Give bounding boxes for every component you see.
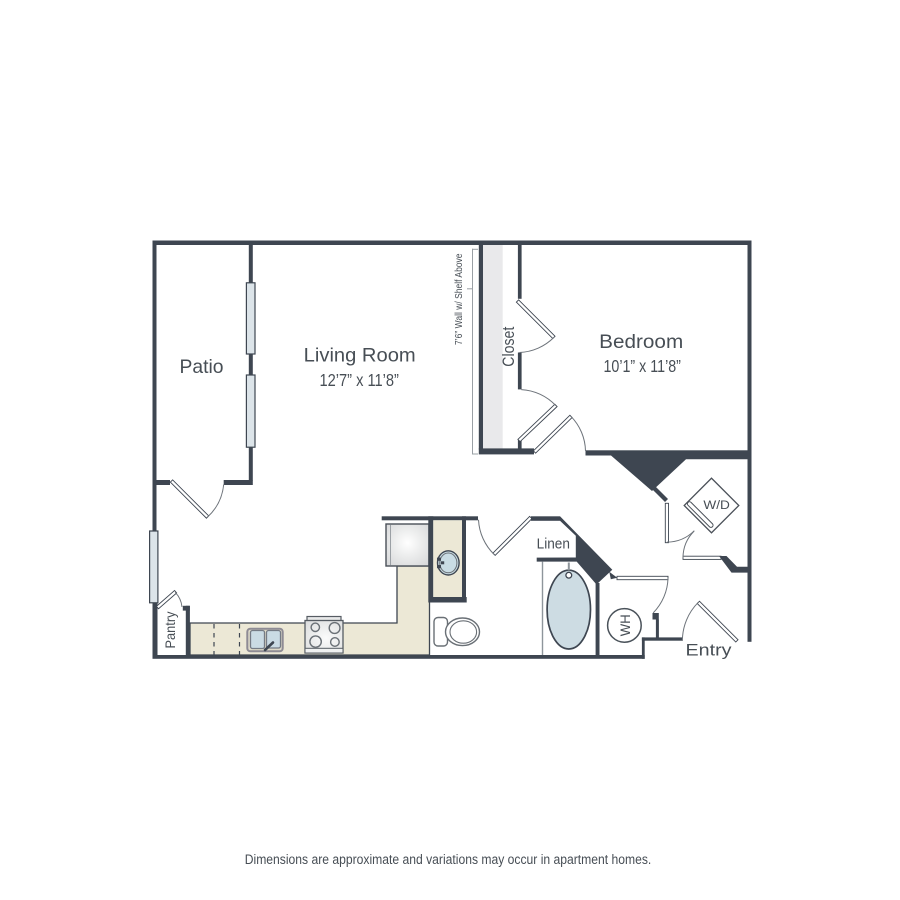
svg-text:12’7” x 11’8”: 12’7” x 11’8”	[319, 370, 399, 390]
svg-text:WH: WH	[618, 614, 633, 636]
svg-text:Living Room: Living Room	[304, 345, 416, 367]
svg-text:Closet: Closet	[500, 326, 518, 366]
svg-text:Patio: Patio	[180, 356, 224, 378]
svg-text:Bedroom: Bedroom	[599, 331, 683, 353]
svg-text:Linen: Linen	[537, 535, 570, 552]
svg-text:Pantry: Pantry	[162, 612, 178, 649]
svg-text:10’1” x 11’8”: 10’1” x 11’8”	[603, 356, 681, 376]
svg-text:7’6” Wall w/ Shelf Above: 7’6” Wall w/ Shelf Above	[454, 253, 465, 345]
svg-text:Dimensions are approximate and: Dimensions are approximate and variation…	[245, 852, 652, 867]
svg-text:W/D: W/D	[703, 500, 730, 512]
svg-text:Entry: Entry	[686, 642, 733, 660]
